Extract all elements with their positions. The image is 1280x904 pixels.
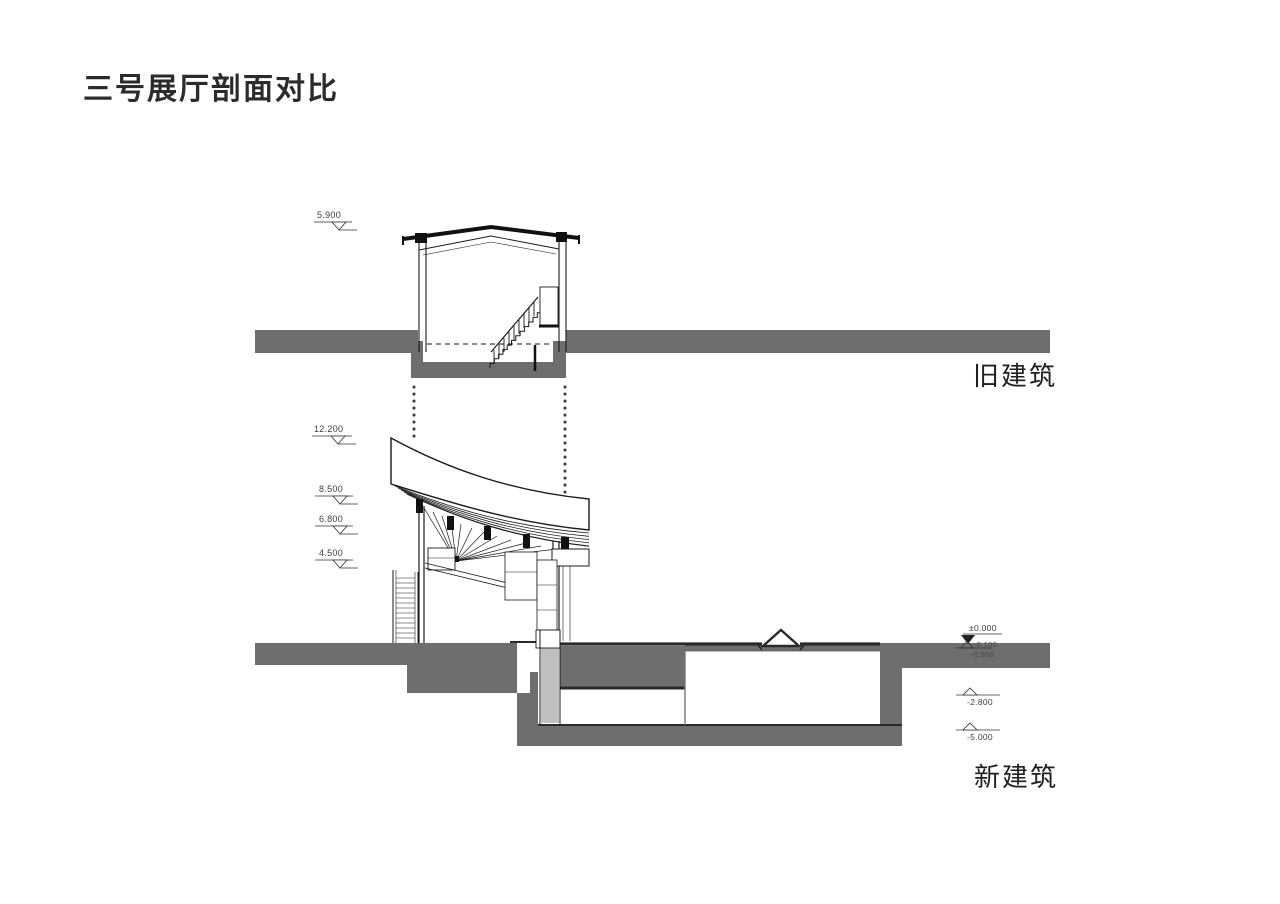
old-building-section — [255, 222, 1050, 496]
new-ground-left-bar — [255, 643, 407, 665]
basement-stair — [536, 630, 560, 724]
level-text-5900: 5.900 — [317, 210, 341, 220]
new-building-section — [255, 436, 1050, 746]
level-text-5000: -5.000 — [967, 732, 993, 742]
level-marker-2800-symbol — [956, 688, 1000, 695]
old-door — [540, 287, 558, 327]
level-marker-5000-symbol — [956, 723, 1000, 730]
old-ceiling-line2 — [423, 242, 556, 255]
level-text-2800: -2.800 — [967, 697, 993, 707]
section-drawing — [0, 0, 1280, 904]
level-text-4500: 4.500 — [319, 548, 343, 558]
interior-box-right — [537, 560, 557, 630]
old-ground-left — [255, 330, 418, 353]
level-marker-12200-symbol — [312, 436, 356, 444]
new-roof-slab — [391, 438, 589, 530]
level-text-12200: 12.200 — [314, 424, 343, 434]
left-exterior-stair — [393, 570, 418, 643]
level-text-0500: -0.500 — [971, 650, 994, 659]
level-text-8500: 8.500 — [319, 484, 343, 494]
roof-tip-fascia — [552, 549, 589, 566]
old-ceiling-line — [419, 236, 559, 250]
level-marker-4500-symbol — [315, 560, 358, 568]
new-ground-tier2 — [407, 643, 517, 693]
old-ground-right — [566, 330, 1050, 353]
level-text-0000: ±0.000 — [969, 623, 997, 633]
skylight-peak — [763, 630, 799, 646]
new-mezzanine-earth — [560, 646, 685, 688]
level-text-6800: 6.800 — [319, 514, 343, 524]
level-text-0100: -0.100 — [974, 640, 997, 649]
level-marker-5900-symbol — [314, 222, 357, 230]
interior-box-mid — [505, 552, 537, 600]
old-building-label: 旧建筑 — [973, 356, 1057, 393]
old-pit — [411, 341, 566, 378]
old-roof — [403, 227, 579, 239]
new-building-label: 新建筑 — [974, 757, 1058, 794]
level-marker-8500-symbol — [315, 496, 358, 504]
section-comparison-page: 三号展厅剖面对比 — [0, 0, 1280, 904]
new-ground-right-bar — [880, 643, 1050, 668]
level-marker-6800-symbol — [315, 526, 358, 534]
